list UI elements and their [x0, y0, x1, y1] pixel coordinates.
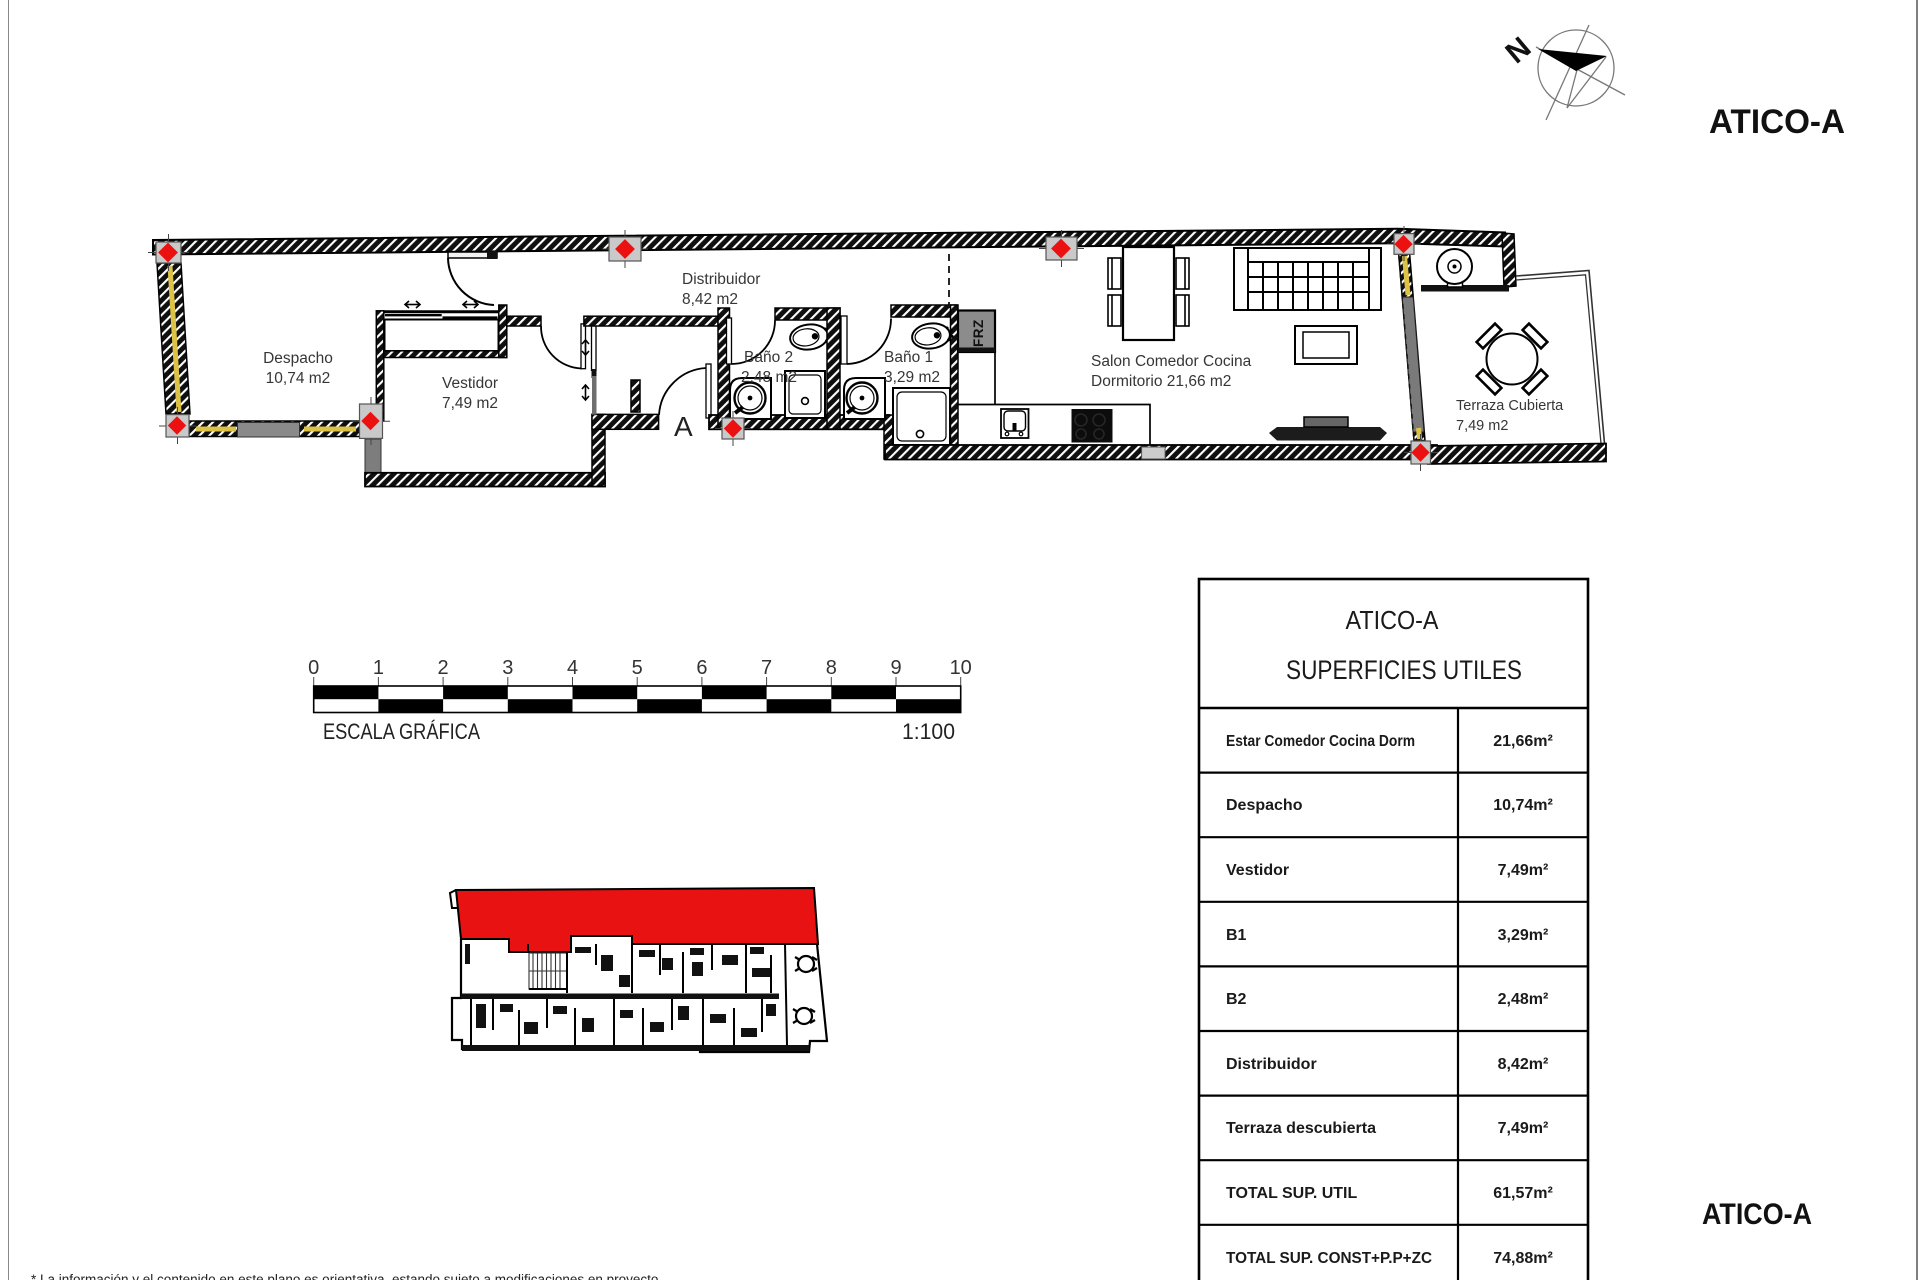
svg-text:1:100: 1:100: [902, 719, 955, 744]
svg-text:10,74 m2: 10,74 m2: [266, 370, 331, 387]
svg-text:Terraza descubierta: Terraza descubierta: [1226, 1120, 1376, 1137]
svg-text:21,66m²: 21,66m²: [1493, 733, 1553, 750]
svg-text:4: 4: [567, 657, 578, 679]
svg-text:8: 8: [826, 657, 837, 679]
svg-text:Salon Comedor Cocina: Salon Comedor Cocina: [1091, 353, 1252, 370]
svg-text:Baño 2: Baño 2: [744, 349, 793, 366]
svg-text:A: A: [674, 411, 693, 442]
svg-text:ATICO-A: ATICO-A: [1346, 605, 1440, 635]
svg-text:61,57m²: 61,57m²: [1493, 1185, 1553, 1202]
svg-text:8,42 m2: 8,42 m2: [682, 291, 738, 308]
svg-text:Terraza Cubierta: Terraza Cubierta: [1456, 398, 1564, 414]
svg-text:2: 2: [438, 657, 449, 679]
svg-text:FRZ: FRZ: [971, 319, 986, 347]
svg-text:2,48 m2: 2,48 m2: [741, 369, 797, 386]
svg-text:7,49m²: 7,49m²: [1498, 862, 1549, 879]
svg-text:0: 0: [308, 657, 319, 679]
svg-text:10,74m²: 10,74m²: [1493, 797, 1553, 814]
svg-text:TOTAL SUP. CONST+P.P+ZC: TOTAL SUP. CONST+P.P+ZC: [1226, 1250, 1432, 1267]
svg-text:SUPERFICIES UTILES: SUPERFICIES UTILES: [1286, 655, 1522, 685]
svg-text:TOTAL SUP. UTIL: TOTAL SUP. UTIL: [1226, 1185, 1358, 1202]
svg-text:7,49 m2: 7,49 m2: [1456, 418, 1508, 434]
svg-text:74,88m²: 74,88m²: [1493, 1250, 1553, 1267]
svg-text:ESCALA GRÁFICA: ESCALA GRÁFICA: [323, 719, 480, 744]
svg-text:Distribuidor: Distribuidor: [1226, 1056, 1317, 1073]
svg-text:3,29m²: 3,29m²: [1498, 927, 1549, 944]
svg-text:2,48m²: 2,48m²: [1498, 991, 1549, 1008]
svg-text:Despacho: Despacho: [263, 350, 333, 367]
svg-text:3,29 m2: 3,29 m2: [884, 369, 940, 386]
svg-text:8,42m²: 8,42m²: [1498, 1056, 1549, 1073]
svg-text:1: 1: [373, 657, 384, 679]
svg-text:ATICO-A: ATICO-A: [1702, 1198, 1812, 1231]
svg-text:ATICO-A: ATICO-A: [1709, 103, 1845, 141]
svg-text:7,49 m2: 7,49 m2: [442, 395, 498, 412]
svg-text:7: 7: [761, 657, 772, 679]
svg-text:7,49m²: 7,49m²: [1498, 1120, 1549, 1137]
svg-text:Estar Comedor Cocina Dorm: Estar Comedor Cocina Dorm: [1226, 733, 1415, 750]
svg-text:3: 3: [502, 657, 513, 679]
svg-text:N: N: [1500, 31, 1538, 70]
svg-text:9: 9: [890, 657, 901, 679]
svg-text:Despacho: Despacho: [1226, 797, 1303, 814]
svg-text:10: 10: [950, 657, 972, 679]
svg-text:Vestidor: Vestidor: [1226, 862, 1289, 879]
svg-text:6: 6: [696, 657, 707, 679]
svg-text:B2: B2: [1226, 991, 1247, 1008]
svg-text:Vestidor: Vestidor: [442, 375, 498, 392]
svg-text:5: 5: [632, 657, 643, 679]
svg-text:Baño 1: Baño 1: [884, 349, 933, 366]
svg-text:Dormitorio 21,66 m2: Dormitorio 21,66 m2: [1091, 373, 1231, 390]
svg-text:Distribuidor: Distribuidor: [682, 271, 760, 288]
svg-text:B1: B1: [1226, 927, 1247, 944]
svg-text:* La información y el contenid: * La información y el contenido en este …: [31, 1272, 662, 1280]
